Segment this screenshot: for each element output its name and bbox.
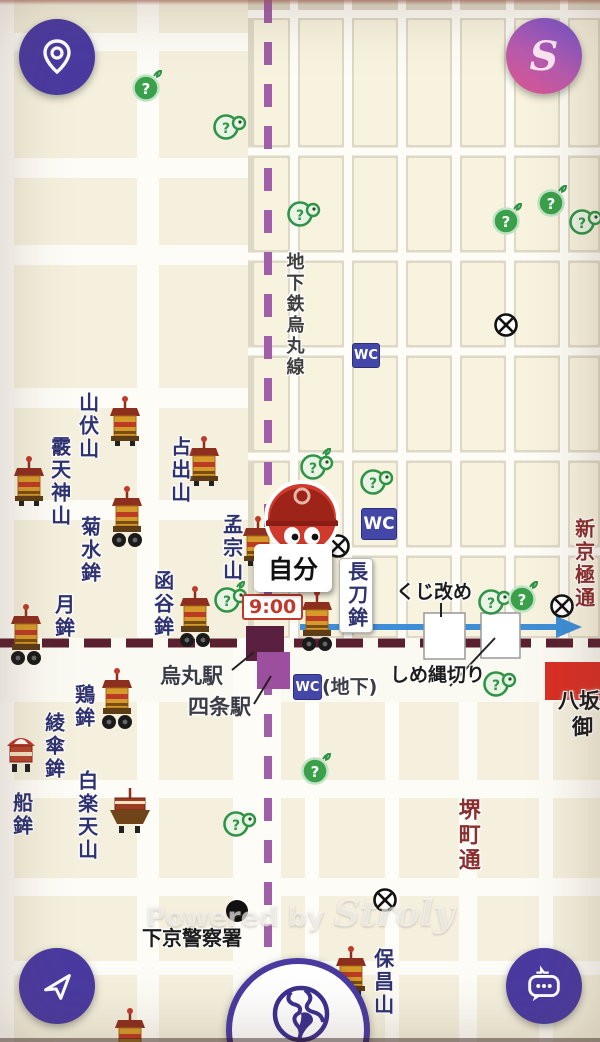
svg-text:?: ? bbox=[578, 216, 586, 232]
svg-text:?: ? bbox=[309, 461, 317, 477]
mystery-marker-icon[interactable]: ? bbox=[299, 753, 335, 793]
wc-icon: WC bbox=[352, 343, 380, 368]
mystery-marker-icon[interactable]: ? bbox=[212, 108, 248, 148]
map-label: 新京極通 bbox=[572, 518, 594, 610]
map-label: 鶏鉾 bbox=[72, 684, 94, 730]
map-label: (地下) bbox=[322, 677, 377, 698]
float-icon[interactable] bbox=[106, 396, 144, 450]
map-markers-layer: WCWCWC ? ? ? ? ? bbox=[0, 0, 600, 1042]
float-icon[interactable] bbox=[298, 590, 336, 658]
svg-text:?: ? bbox=[142, 80, 151, 98]
svg-text:?: ? bbox=[232, 818, 240, 834]
map-label: しめ縄切り bbox=[390, 665, 485, 686]
stroly-logo-letter: S bbox=[530, 33, 559, 80]
wc-icon: WC bbox=[293, 674, 322, 700]
map-label: 山伏山 bbox=[76, 392, 98, 461]
svg-text:?: ? bbox=[492, 678, 500, 694]
location-pin-icon bbox=[37, 37, 77, 77]
map-label: 四条駅 bbox=[188, 696, 251, 719]
mystery-marker-icon[interactable]: ? bbox=[286, 195, 322, 235]
stroly-logo-button[interactable]: S bbox=[506, 18, 582, 94]
float-icon[interactable] bbox=[98, 668, 136, 736]
mystery-marker-icon[interactable]: ? bbox=[490, 203, 526, 243]
time-badge: 9:00 bbox=[242, 594, 303, 620]
svg-text:?: ? bbox=[487, 596, 495, 612]
map-screen: WCWCWC ? ? ? ? ? bbox=[0, 0, 600, 1042]
mystery-marker-icon[interactable]: ? bbox=[535, 185, 571, 225]
map-label: 函谷鉾 bbox=[151, 570, 173, 639]
float-icon[interactable] bbox=[176, 586, 214, 654]
map-label: 御 bbox=[572, 716, 593, 739]
float-icon[interactable] bbox=[10, 456, 48, 510]
locate-button[interactable] bbox=[19, 19, 95, 95]
float-icon[interactable] bbox=[107, 788, 153, 844]
closed-marker-icon bbox=[372, 887, 398, 917]
map-label: 船鉾 bbox=[10, 792, 32, 838]
svg-text:?: ? bbox=[547, 195, 556, 213]
wc-icon: WC bbox=[361, 508, 397, 540]
chat-button[interactable] bbox=[506, 948, 582, 1024]
map-label: 孟宗山 bbox=[220, 514, 242, 583]
map-label: 地下鉄烏丸線 bbox=[284, 252, 303, 378]
chat-bubble-icon bbox=[523, 965, 565, 1007]
mystery-marker-icon[interactable]: ? bbox=[482, 665, 518, 705]
map-label: 保昌山 bbox=[371, 948, 393, 1017]
svg-text:?: ? bbox=[296, 208, 304, 224]
float-icon[interactable] bbox=[108, 486, 146, 554]
map-label: 月鉾 bbox=[52, 594, 74, 640]
map-label: 堺町通 bbox=[455, 798, 479, 873]
map-label: 長刀鉾 bbox=[339, 558, 373, 633]
map-label: 八坂 bbox=[558, 690, 600, 713]
map-label: 菊水鉾 bbox=[78, 516, 100, 585]
map-label: 烏丸駅 bbox=[160, 665, 223, 688]
map-label: くじ改め bbox=[396, 582, 472, 603]
svg-text:?: ? bbox=[502, 213, 511, 231]
mystery-marker-icon[interactable]: ? bbox=[506, 581, 542, 621]
float-icon[interactable] bbox=[111, 1008, 149, 1042]
map-label: 綾傘鉾 bbox=[42, 712, 64, 781]
mystery-marker-icon[interactable]: ? bbox=[222, 805, 258, 845]
mystery-marker-icon[interactable]: ? bbox=[130, 70, 166, 110]
svg-text:?: ? bbox=[311, 763, 320, 781]
closed-marker-icon bbox=[493, 312, 519, 342]
globe-icon bbox=[271, 984, 331, 1042]
self-badge: 自分 bbox=[254, 544, 332, 592]
float-icon[interactable] bbox=[7, 604, 45, 672]
mystery-marker-icon[interactable]: ? bbox=[568, 203, 600, 243]
navigate-button[interactable] bbox=[19, 948, 95, 1024]
map-label: 白楽天山 bbox=[75, 770, 97, 862]
map-label: 下京警察署 bbox=[142, 928, 242, 950]
svg-text:?: ? bbox=[222, 121, 230, 137]
svg-text:?: ? bbox=[223, 594, 231, 610]
navigation-arrow-icon bbox=[38, 967, 76, 1005]
svg-text:?: ? bbox=[518, 591, 527, 609]
mystery-marker-icon[interactable]: ? bbox=[359, 463, 395, 503]
map-label: 霰天神山 bbox=[48, 436, 70, 528]
map-label: 占出山 bbox=[168, 436, 190, 505]
svg-text:?: ? bbox=[369, 476, 377, 492]
float-icon[interactable] bbox=[2, 728, 40, 784]
